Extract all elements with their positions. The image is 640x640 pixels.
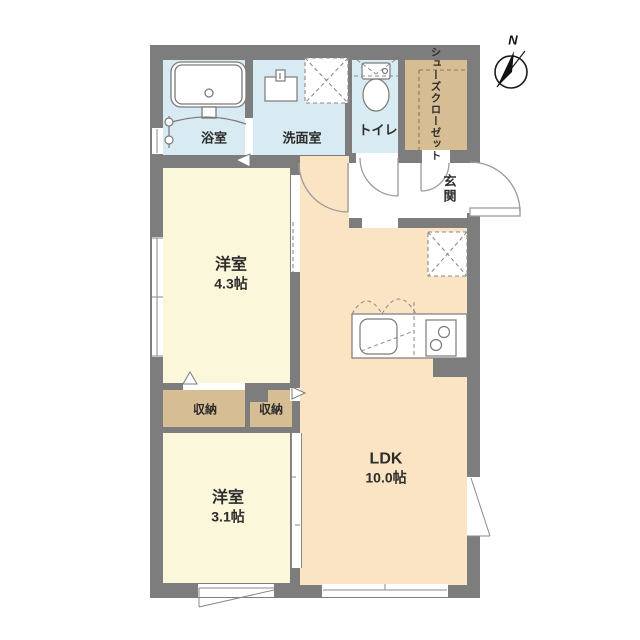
western2-name: 洋室 xyxy=(211,488,244,508)
shoes-closet-label: シューズ クローゼット xyxy=(429,47,444,162)
entrance-door-opening xyxy=(467,163,480,213)
western2-size: 3.1帖 xyxy=(211,508,244,526)
storage-left-opening xyxy=(183,383,245,390)
ldk-name: LDK xyxy=(365,449,406,469)
bath-label: 浴室 xyxy=(201,128,227,147)
window-south-ldk xyxy=(322,584,448,597)
window-east-ldk xyxy=(467,477,480,536)
ldk-size: 10.0帖 xyxy=(365,469,406,487)
western1-sliding-opening xyxy=(291,175,300,272)
toilet-label: トイレ xyxy=(358,120,397,139)
western1-label: 洋室 4.3帖 xyxy=(214,255,247,293)
window-west-bath xyxy=(152,128,163,154)
washroom-label: 洗面室 xyxy=(282,128,321,147)
compass-icon xyxy=(495,51,527,88)
storage-right-opening xyxy=(290,388,300,401)
western1-name: 洋室 xyxy=(214,255,247,275)
shoes-closet-label-line1: シューズ xyxy=(429,47,444,93)
western1-size: 4.3帖 xyxy=(214,275,247,293)
floorplan-canvas: 浴室 洗面室 トイレ シューズ クローゼット 玄関 洋室 4.3帖 収納 収納 … xyxy=(0,0,640,640)
compass-north-label: N xyxy=(508,33,517,48)
entrance-label: 玄関 xyxy=(440,174,459,204)
window-west-western1 xyxy=(152,237,163,357)
window-south-western2 xyxy=(198,584,274,597)
room-ldk-floor-upper xyxy=(300,156,349,228)
wall-jut xyxy=(433,358,480,377)
bath-door-opening xyxy=(245,118,253,155)
storage-right-label: 収納 xyxy=(259,401,283,418)
storage-left-label: 収納 xyxy=(193,401,217,418)
room-ldk-floor xyxy=(300,228,467,585)
room-toilet-floor xyxy=(352,60,398,153)
shoes-closet-label-line2: クローゼット xyxy=(429,93,444,162)
western2-sliding-door xyxy=(291,433,302,568)
hall-passage-opening xyxy=(362,218,398,228)
western2-label: 洋室 3.1帖 xyxy=(211,488,244,526)
ldk-label: LDK 10.0帖 xyxy=(365,449,406,487)
toilet-door-opening xyxy=(356,153,398,163)
